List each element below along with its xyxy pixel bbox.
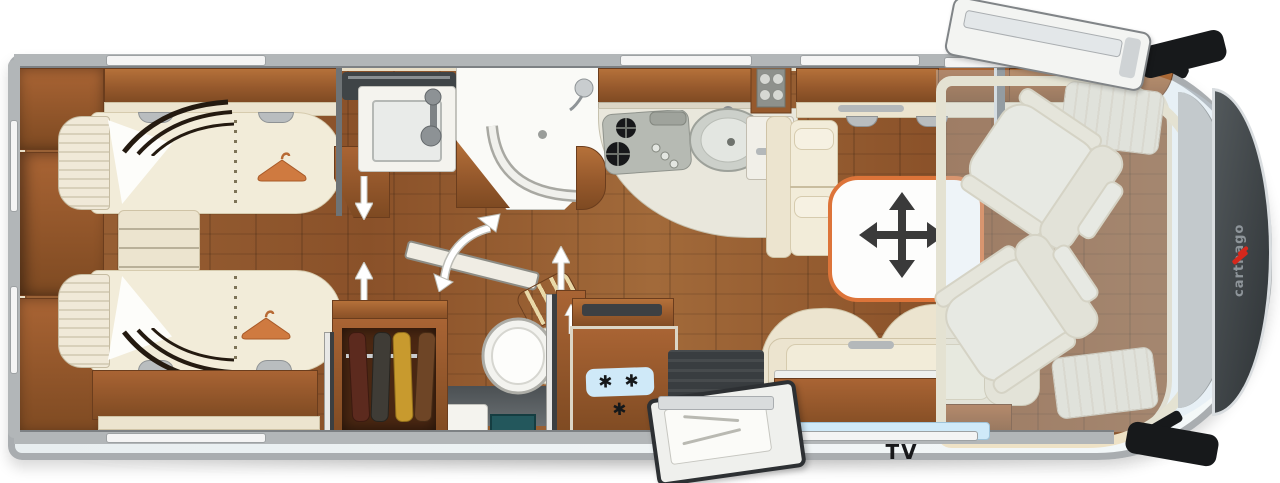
sliding-door-track [330, 332, 334, 434]
cabinet-handle [838, 105, 904, 112]
overhead-cabinet-kitchen [598, 68, 754, 104]
fridge-vent [582, 304, 662, 316]
hanging-garment [392, 332, 413, 423]
sofa-handle [848, 341, 894, 349]
bed-bottom-fold-line [234, 276, 237, 362]
slide-direction-arrow-icon [355, 176, 373, 220]
fridge-snowflake-label: ✱ ✱ ✱ [586, 367, 655, 397]
hanging-garment [370, 332, 391, 423]
kitchen-hob [602, 110, 694, 176]
reading-light [258, 112, 294, 123]
bed-top-headboard [58, 116, 110, 210]
bench-headrest [794, 128, 834, 150]
bed-center-steps [118, 210, 200, 274]
bed-top-fold-line [234, 120, 237, 206]
bed-frame-arcs-top [116, 98, 234, 156]
rear-wall [8, 60, 20, 438]
entrance-step [658, 396, 774, 410]
hanger-icon [254, 150, 310, 184]
bed-bottom-base [92, 370, 318, 420]
window [10, 286, 18, 374]
four-way-move-arrow-icon [857, 190, 947, 280]
window [106, 55, 266, 66]
cab-door-window [963, 10, 1123, 58]
bed-bottom-sill [98, 416, 320, 430]
tv-label: TV [870, 440, 934, 462]
faucet-icon [418, 88, 448, 150]
hanger-icon [238, 308, 294, 342]
heater-vent-unit [750, 62, 792, 114]
dinette-bench-back [766, 116, 792, 258]
window [620, 55, 752, 66]
door-swing-arrow-icon [430, 212, 504, 292]
window [800, 55, 920, 66]
slide-direction-arrow-icon [552, 246, 570, 290]
bench-divider [790, 186, 836, 188]
shower-drain [538, 130, 547, 139]
floorplan-scene: ✱ ✱ ✱ carthago [0, 0, 1280, 483]
window [10, 120, 18, 212]
window [106, 433, 266, 443]
vanity-shelf [348, 76, 450, 79]
sliding-door-track [552, 294, 557, 432]
shower-head-icon [562, 76, 596, 116]
bed-bottom-headboard [58, 274, 110, 368]
